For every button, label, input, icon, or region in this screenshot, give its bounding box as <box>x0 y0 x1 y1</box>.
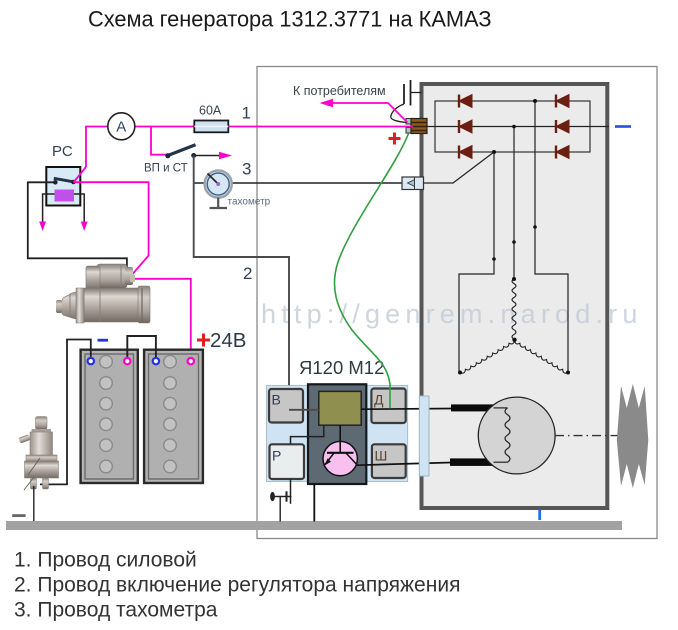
svg-text:РС: РС <box>52 143 73 160</box>
svg-text:2: 2 <box>243 264 252 283</box>
svg-text:60А: 60А <box>199 104 222 118</box>
svg-text:1: 1 <box>242 104 251 123</box>
svg-text:2. Провод включение регулятора: 2. Провод включение регулятора напряжени… <box>14 574 460 597</box>
svg-text:3. Провод тахометра: 3. Провод тахометра <box>14 599 218 622</box>
svg-text:3: 3 <box>242 160 251 179</box>
svg-text:А: А <box>116 119 126 136</box>
svg-text:http://genrem.narod.ru: http://genrem.narod.ru <box>261 299 643 329</box>
svg-text:Схема генератора 1312.3771 на: Схема генератора 1312.3771 на КАМАЗ <box>88 7 492 32</box>
svg-text:тахометр: тахометр <box>228 197 271 208</box>
svg-text:ВП и СТ: ВП и СТ <box>144 163 188 175</box>
svg-text:24В: 24В <box>210 329 246 352</box>
svg-text:Ш: Ш <box>375 448 388 464</box>
svg-text:Д: Д <box>374 392 384 408</box>
svg-text:Р: Р <box>272 448 281 464</box>
svg-text:Я120 М12: Я120 М12 <box>299 357 384 378</box>
svg-text:В: В <box>272 392 281 408</box>
svg-text:1. Провод силовой: 1. Провод силовой <box>14 549 197 572</box>
svg-text:К потребителям: К потребителям <box>293 84 386 98</box>
